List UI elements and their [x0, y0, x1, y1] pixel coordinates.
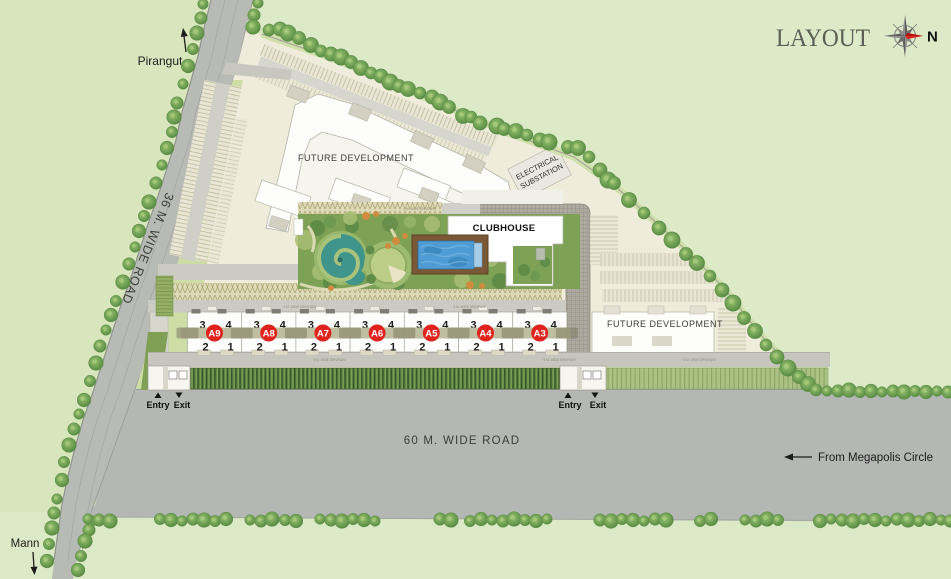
svg-text:Mann: Mann [11, 538, 40, 550]
svg-text:A7: A7 [317, 328, 329, 339]
svg-text:6 M. WIDE DRIVEWAY: 6 M. WIDE DRIVEWAY [684, 358, 718, 362]
svg-text:2: 2 [473, 342, 479, 354]
svg-text:LAYOUT: LAYOUT [776, 23, 870, 52]
svg-text:2: 2 [257, 342, 263, 354]
svg-text:FUTURE DEVELOPMENT: FUTURE DEVELOPMENT [298, 153, 414, 163]
svg-text:2: 2 [419, 342, 425, 354]
svg-text:A6: A6 [371, 328, 383, 339]
svg-text:1: 1 [282, 342, 288, 354]
svg-text:1: 1 [390, 342, 396, 354]
svg-text:2: 2 [311, 342, 317, 354]
svg-text:1: 1 [498, 342, 504, 354]
svg-text:2: 2 [528, 342, 534, 354]
svg-text:1: 1 [553, 342, 559, 354]
svg-text:From Megapolis Circle: From Megapolis Circle [818, 452, 933, 464]
svg-text:60 M. WIDE ROAD: 60 M. WIDE ROAD [404, 435, 520, 447]
svg-text:CLUBHOUSE: CLUBHOUSE [473, 223, 536, 234]
svg-text:A8: A8 [263, 328, 275, 339]
svg-text:6 M. WIDE DRIVEWAY: 6 M. WIDE DRIVEWAY [404, 207, 438, 211]
svg-text:N: N [927, 29, 938, 46]
svg-text:4 M. WIDE DRIVEWAY: 4 M. WIDE DRIVEWAY [454, 305, 488, 309]
svg-text:A3: A3 [534, 328, 546, 339]
svg-text:1: 1 [444, 342, 450, 354]
svg-text:2: 2 [202, 342, 208, 354]
svg-text:Pirangut: Pirangut [138, 54, 183, 68]
svg-text:Exit: Exit [590, 400, 607, 410]
svg-text:A5: A5 [425, 328, 438, 339]
svg-text:6 M. WIDE DRIVEWAY: 6 M. WIDE DRIVEWAY [544, 358, 578, 362]
svg-text:A9: A9 [208, 328, 220, 339]
svg-text:A4: A4 [479, 328, 492, 339]
svg-text:2: 2 [365, 342, 371, 354]
svg-text:FUTURE DEVELOPMENT: FUTURE DEVELOPMENT [607, 319, 723, 329]
svg-text:Entry: Entry [558, 400, 581, 410]
svg-text:1: 1 [227, 342, 233, 354]
svg-text:Exit: Exit [174, 400, 191, 410]
svg-text:6 M. WIDE DRIVEWAY: 6 M. WIDE DRIVEWAY [314, 358, 348, 362]
svg-text:Entry: Entry [146, 400, 169, 410]
svg-text:1: 1 [336, 342, 342, 354]
svg-text:4 M. WIDE DRIVEWAY: 4 M. WIDE DRIVEWAY [284, 305, 318, 309]
